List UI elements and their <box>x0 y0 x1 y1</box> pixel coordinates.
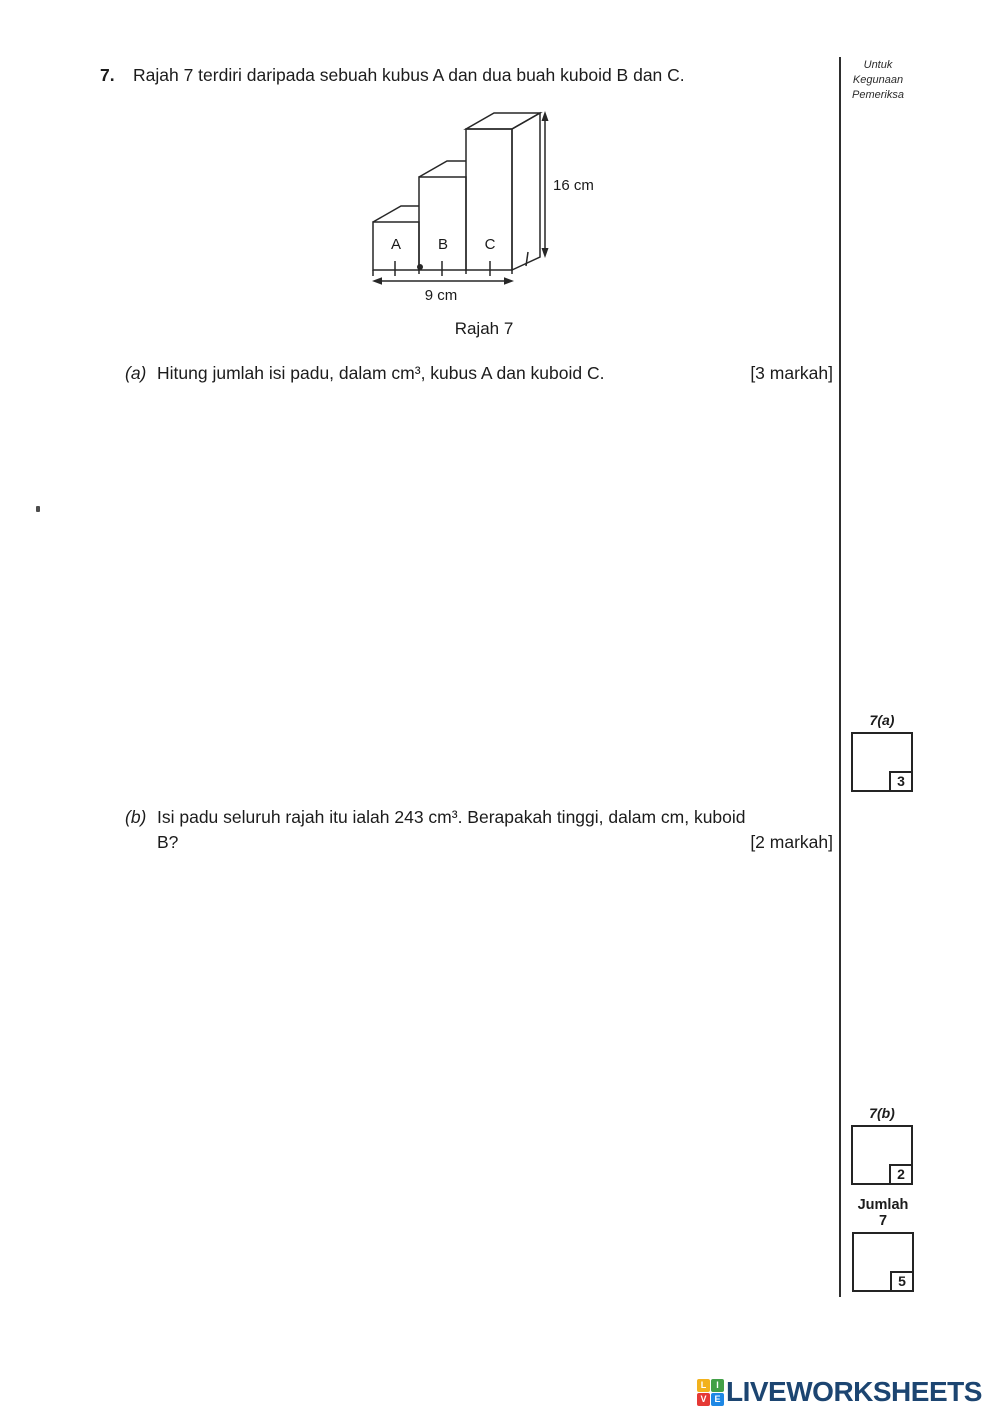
arrowhead-down <box>542 248 549 258</box>
total-label-line2: 7 <box>852 1213 914 1229</box>
part-a-letter: (a) <box>125 361 157 386</box>
scan-speck <box>36 506 40 512</box>
base-dimension-label: 9 cm <box>425 287 458 304</box>
figure-caption: Rajah 7 <box>455 319 514 338</box>
figure-rajah-7: A B C 16 cm 9 cm Rajah 7 <box>340 95 620 350</box>
height-dimension-label: 16 cm <box>553 177 594 194</box>
depth-edge-tick <box>526 252 528 266</box>
markbox-7b-box: 2 <box>851 1125 913 1185</box>
icon-cell-e: E <box>711 1393 724 1406</box>
cuboid-b-top-face <box>419 161 466 177</box>
part-b-letter: (b) <box>125 805 157 830</box>
question-number: 7. <box>100 64 133 86</box>
arrowhead-right <box>504 277 514 285</box>
markbox-total-box: 5 <box>852 1232 914 1292</box>
question-row: 7. Rajah 7 terdiri daripada sebuah kubus… <box>100 64 833 86</box>
cuboid-b-front-face <box>419 177 466 270</box>
arrowheads <box>372 111 549 285</box>
markbox-total: Jumlah 7 5 <box>852 1197 914 1292</box>
part-b-marks: [2 markah] <box>750 830 833 855</box>
icon-cell-v: V <box>697 1393 710 1406</box>
part-a-row: (a) Hitung jumlah isi padu, dalam cm³, k… <box>125 361 833 386</box>
markbox-7b-score: 2 <box>889 1164 913 1185</box>
markbox-7a: 7(a) 3 <box>851 712 913 792</box>
examiner-header-line1: Untuk <box>842 58 914 73</box>
icon-cell-i: I <box>711 1379 724 1392</box>
box-label-b: B <box>438 236 448 253</box>
ink-dot-artifact <box>417 264 423 270</box>
part-a-marks: [3 markah] <box>750 361 833 386</box>
markbox-7a-score: 3 <box>889 771 913 792</box>
brand-wordmark: LIVEWORKSHEETS <box>726 1376 982 1408</box>
box-label-c: C <box>485 236 496 253</box>
markbox-7a-label: 7(a) <box>851 712 913 728</box>
solid-outlines <box>373 113 545 281</box>
total-label-line1: Jumlah <box>852 1197 914 1213</box>
markbox-7a-box: 3 <box>851 732 913 792</box>
part-b-text-line2: B? <box>157 830 178 855</box>
cuboid-c-side-face <box>512 113 540 270</box>
arrowhead-up <box>542 111 549 121</box>
part-b-row: (b) Isi padu seluruh rajah itu ialah 243… <box>125 805 833 855</box>
examiner-header-line3: Pemeriksa <box>842 88 914 103</box>
liveworksheets-icon: L I V E <box>697 1379 724 1406</box>
part-b-text-line1: Isi padu seluruh rajah itu ialah 243 cm³… <box>157 805 833 830</box>
examiner-header-line2: Kegunaan <box>842 73 914 88</box>
markbox-7b: 7(b) 2 <box>851 1105 913 1185</box>
examiner-header: Untuk Kegunaan Pemeriksa <box>842 58 914 103</box>
cuboid-c-top-face <box>466 113 540 129</box>
arrowhead-left <box>372 277 382 285</box>
icon-cell-l: L <box>697 1379 710 1392</box>
examiner-column-rule <box>839 57 841 1297</box>
box-label-a: A <box>391 236 401 253</box>
markbox-7b-label: 7(b) <box>851 1105 913 1121</box>
part-a-text: Hitung jumlah isi padu, dalam cm³, kubus… <box>157 361 750 386</box>
cube-a-top-face <box>373 206 419 222</box>
worksheet-page: 7. Rajah 7 terdiri daripada sebuah kubus… <box>0 0 1000 1412</box>
markbox-total-score: 5 <box>890 1271 914 1292</box>
question-text: Rajah 7 terdiri daripada sebuah kubus A … <box>133 64 685 86</box>
liveworksheets-logo[interactable]: L I V E LIVEWORKSHEETS <box>697 1376 982 1408</box>
